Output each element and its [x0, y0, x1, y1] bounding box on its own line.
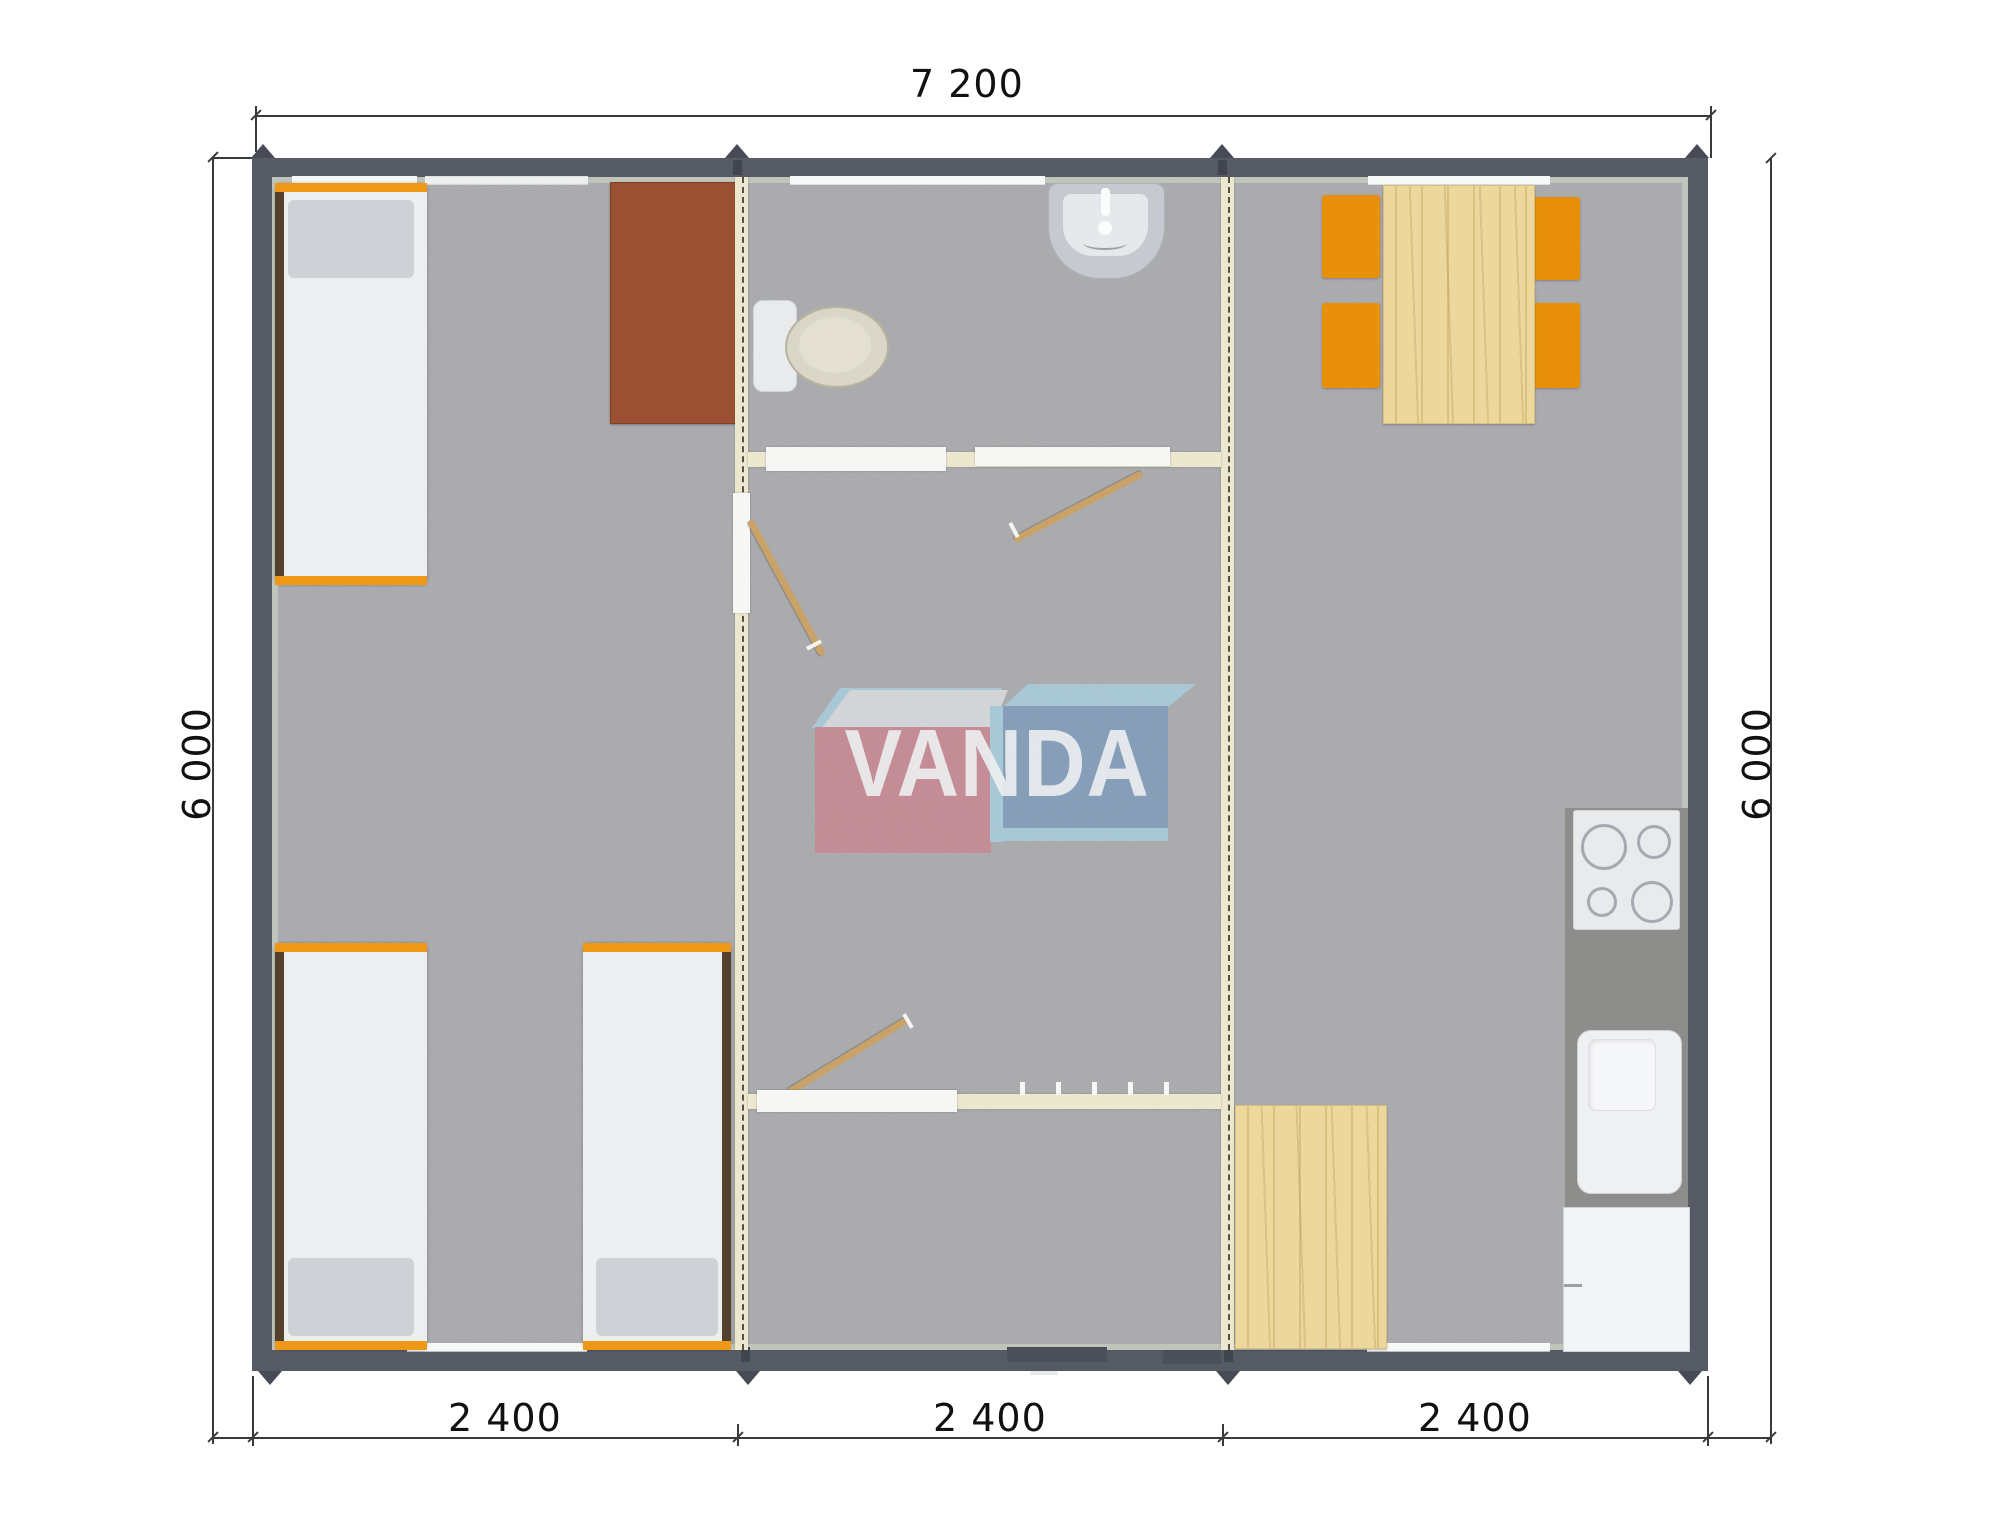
- burner-icon: [1587, 887, 1617, 917]
- joint-marker-icon: [725, 144, 749, 158]
- hook-mark: [1164, 1082, 1169, 1095]
- bed: [275, 183, 427, 585]
- sink-basin: [1588, 1039, 1656, 1111]
- dimension-label-left: 6 000: [175, 707, 219, 821]
- dimension-line-top: [255, 115, 1710, 117]
- door-opening: [733, 493, 750, 613]
- dimension-label-top: 7 200: [910, 62, 1024, 106]
- desk: [610, 182, 737, 424]
- bed: [583, 943, 731, 1350]
- bed: [275, 943, 427, 1350]
- dimension-label-right: 6 000: [1735, 707, 1779, 821]
- hook-mark: [1056, 1082, 1061, 1095]
- fridge: [1563, 1207, 1690, 1352]
- hook-mark: [1092, 1082, 1097, 1095]
- wood-mat: [1235, 1105, 1387, 1349]
- faucet-icon: [1101, 188, 1110, 216]
- fridge-handle: [1564, 1284, 1582, 1287]
- partition-centerline: [1228, 177, 1230, 1350]
- toilet-seat: [799, 317, 871, 373]
- sliding-door-panel: [975, 447, 1170, 466]
- dimension-label-bottom-2: 2 400: [933, 1396, 1047, 1440]
- partition-wall: [735, 177, 748, 1350]
- burner-icon: [1637, 825, 1671, 859]
- module-joint-mark: [1218, 160, 1227, 175]
- joint-marker-icon: [1216, 1371, 1240, 1385]
- extension-line: [212, 157, 254, 159]
- bed-rail: [275, 943, 284, 1350]
- joint-marker-icon: [736, 1371, 760, 1385]
- pillow: [596, 1258, 718, 1336]
- bed-rail: [275, 183, 284, 585]
- burner-icon: [1631, 881, 1673, 923]
- hook-mark: [1128, 1082, 1133, 1095]
- window: [1368, 176, 1550, 184]
- dimension-label-bottom-3: 2 400: [1418, 1396, 1532, 1440]
- bed-frame-bar: [275, 943, 427, 952]
- logo-box-face: [1003, 684, 1196, 707]
- sliding-door-panel: [766, 447, 946, 471]
- chair: [1533, 197, 1580, 280]
- faucet-knob-icon: [1098, 221, 1112, 235]
- bed-frame-bar: [275, 576, 427, 585]
- pillow: [288, 1258, 414, 1336]
- bed-frame-bar: [275, 1341, 427, 1350]
- partition-centerline: [742, 177, 744, 1350]
- corner-marker-icon: [1685, 144, 1709, 158]
- window: [1367, 1343, 1550, 1351]
- watermark-text: VANDA: [845, 716, 1142, 812]
- corner-marker-icon: [251, 144, 275, 158]
- entry-threshold: [1163, 1350, 1221, 1364]
- sliding-door-panel: [757, 1090, 957, 1112]
- hook-mark: [1020, 1082, 1025, 1095]
- window: [790, 176, 1045, 184]
- bed-frame-bar: [583, 943, 731, 952]
- joint-marker-icon: [1210, 144, 1234, 158]
- pillow: [288, 200, 414, 278]
- entry-threshold: [1007, 1347, 1107, 1362]
- bed-frame-bar: [275, 183, 427, 192]
- chair: [1533, 303, 1580, 388]
- kitchen-sink: [1577, 1030, 1682, 1194]
- dining-table: [1383, 185, 1535, 424]
- bed-frame-bar: [583, 1341, 731, 1350]
- bed-rail: [722, 943, 731, 1350]
- basin-drain-line: [1083, 236, 1127, 250]
- module-joint-mark: [733, 160, 742, 175]
- door-handle-mark: [1030, 1371, 1058, 1375]
- chair: [1322, 303, 1380, 388]
- window: [407, 1343, 587, 1351]
- floor-plan-canvas: 7 200 6 000 6 000 2 400 2 400 2 400: [0, 0, 2000, 1537]
- corner-marker-icon: [1678, 1371, 1702, 1385]
- window: [425, 176, 588, 184]
- burner-icon: [1581, 824, 1627, 870]
- cooktop: [1573, 810, 1680, 930]
- dimension-label-bottom-1: 2 400: [448, 1396, 562, 1440]
- corner-marker-icon: [258, 1371, 282, 1385]
- chair: [1322, 195, 1380, 278]
- logo-box-edge: [990, 827, 1168, 841]
- partition-wall: [1221, 177, 1234, 1350]
